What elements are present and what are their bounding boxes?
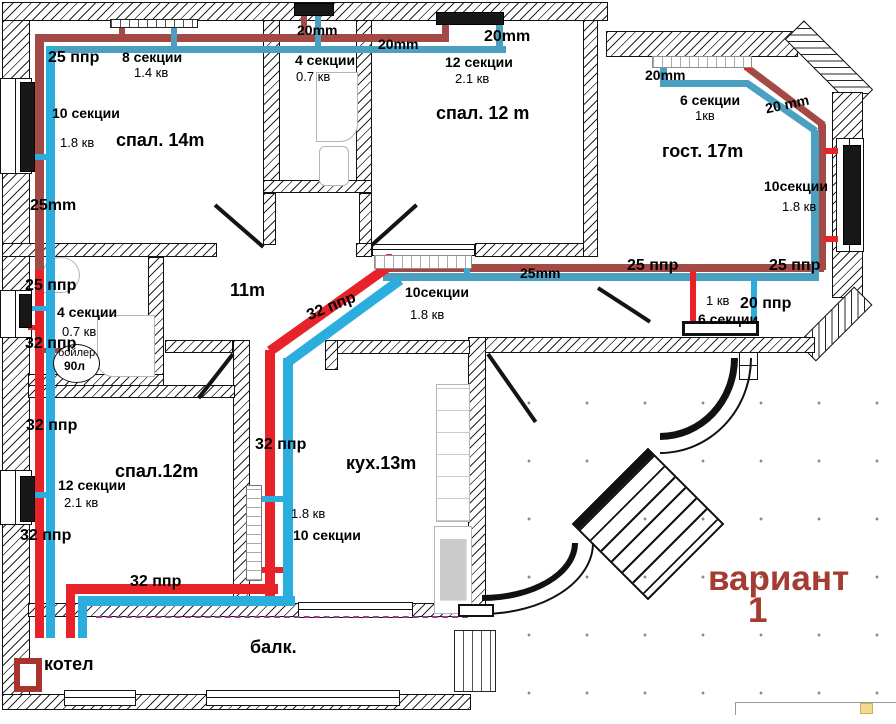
label-33-1-кв: 1 кв	[706, 294, 729, 308]
label-20-10секции: 10секции	[764, 179, 828, 194]
label-47-балк.: балк.	[250, 638, 297, 657]
stairs-upper-arc	[660, 358, 752, 454]
label-39-2.1-кв: 2.1 кв	[64, 496, 98, 510]
supply-riser-kitchen	[265, 350, 275, 596]
door-gost	[597, 286, 651, 323]
toilet-bath1	[319, 146, 349, 186]
radiator-bath1-towel	[294, 3, 334, 16]
floor-plan-heating-diagram: 25 ппр8 секции1.4 кв10 секции1.8 квспал.…	[0, 0, 896, 724]
label-22-25-ппр: 25 ппр	[25, 278, 76, 295]
label-36-32-ппр: 32 ппр	[26, 418, 77, 435]
return-drop-to-boiler	[78, 596, 87, 638]
wall-kitchen-top-step	[325, 340, 338, 370]
label-15-20mm: 20mm	[645, 68, 685, 83]
radiator-spal12b-left	[20, 476, 35, 522]
radiator-bath2-left	[19, 294, 32, 328]
label-43-1.8-кв: 1.8 кв	[291, 507, 325, 521]
door-spal12top	[371, 203, 418, 246]
label-21-1.8-кв: 1.8 кв	[782, 200, 816, 214]
heating-boiler-box	[14, 658, 42, 692]
label-44-10-секции: 10 секции	[293, 528, 361, 543]
label-40-32-ппр: 32 ппр	[20, 528, 71, 545]
wall-hall-bottom-left	[165, 340, 233, 353]
label-37-спал.12m: спал.12m	[115, 462, 198, 481]
label-48-бойлер: бойлер	[58, 348, 95, 360]
wall-hall-gost	[583, 20, 598, 257]
supply-stub-gost-rad-bottom	[824, 236, 838, 242]
kitchen-cabinet-1	[436, 384, 470, 522]
label-31-25-ппр: 25 ппр	[627, 258, 678, 275]
stairs-lower-arc	[482, 543, 594, 615]
supply-drop-to-boiler	[66, 584, 75, 638]
wall-gost-top	[606, 31, 798, 57]
label-17-1кв: 1кв	[695, 109, 715, 123]
label-51-1: 1	[748, 593, 767, 630]
label-23-4-секции: 4 секции	[57, 305, 117, 320]
supply-stub-entry-rad	[690, 271, 696, 324]
label-30-25mm: 25mm	[520, 266, 560, 281]
wall-bath1-bottom	[263, 180, 372, 193]
label-10-20mm: 20mm	[378, 37, 418, 52]
label-0-25-ппр: 25 ппр	[48, 50, 99, 67]
label-27-10секции: 10секции	[405, 285, 469, 300]
wall-niche-right	[359, 193, 372, 245]
label-50-вариант: вариант	[708, 561, 849, 598]
window-balcony-2	[206, 690, 400, 706]
stairs-bottom-landing	[458, 604, 494, 617]
balcony-glazing-dashed-line	[96, 616, 468, 618]
door-spal14	[214, 203, 265, 248]
return-bottom-main	[78, 596, 295, 606]
wall-niche-left	[263, 193, 276, 245]
label-9-0.7-кв: 0.7 кв	[296, 70, 330, 84]
label-35-6-секции: 6 секции	[698, 312, 758, 327]
sticky-note-marker[interactable]	[860, 703, 873, 714]
shower-tray-bath2	[97, 315, 155, 377]
wall-jamb-hall	[356, 243, 372, 257]
radiator-kitchen	[246, 485, 262, 581]
label-12-12-секции: 12 секции	[445, 55, 513, 70]
label-7-20mm: 20mm	[297, 23, 337, 38]
label-13-2.1-кв: 2.1 кв	[455, 72, 489, 86]
label-32-25-ппр: 25 ппр	[769, 258, 820, 275]
label-3-10-секции: 10 секции	[52, 106, 120, 121]
return-stub-spal14-top	[171, 26, 177, 48]
radiator-spal12top	[436, 12, 504, 25]
label-49-90л: 90л	[64, 360, 85, 373]
label-19-гост.-17m: гост. 17m	[662, 142, 743, 161]
label-41-32-ппр: 32 ппр	[255, 437, 306, 454]
label-2-1.4-кв: 1.4 кв	[134, 66, 168, 80]
supply-riser-gost	[818, 124, 826, 270]
radiator-gost-right	[843, 145, 861, 245]
label-5-спал.-14m: спал. 14m	[116, 131, 204, 150]
dot-grid-top-right	[608, 0, 896, 31]
radiator-hallway	[374, 255, 472, 269]
return-riser-kitchen	[283, 358, 293, 606]
wall-entry-bottom	[468, 337, 815, 353]
label-28-1.8-кв: 1.8 кв	[410, 308, 444, 322]
return-pipe-top-main	[46, 46, 506, 53]
window-balcony-1	[64, 690, 136, 706]
label-16-6-секции: 6 секции	[680, 93, 740, 108]
label-38-12-секции: 12 секции	[58, 478, 126, 493]
radiator-spal14-top	[110, 19, 198, 28]
label-14-спал.-12-m: спал. 12 m	[436, 104, 529, 123]
label-45-32-ппр: 32 ппр	[130, 574, 181, 591]
label-6-25mm: 25mm	[30, 198, 76, 215]
label-8-4-секции: 4 секции	[295, 53, 355, 68]
kitchen-cabinet-2	[434, 526, 472, 614]
wall-under-spal12top	[475, 243, 598, 257]
wall-kitchen-top	[325, 340, 470, 354]
supply-stub-gost-rad-top	[824, 148, 838, 154]
label-26-11m: 11m	[230, 281, 265, 300]
label-11-20mm: 20mm	[484, 29, 530, 46]
label-4-1.8-кв: 1.8 кв	[60, 136, 94, 150]
radiator-spal14-left	[20, 82, 35, 172]
label-46-котел: котел	[44, 655, 94, 674]
label-42-кух.13m: кух.13m	[346, 454, 416, 473]
porch-column	[454, 630, 496, 692]
return-stub-kitchen-rad	[260, 496, 284, 502]
label-1-8-секции: 8 секции	[122, 50, 182, 65]
